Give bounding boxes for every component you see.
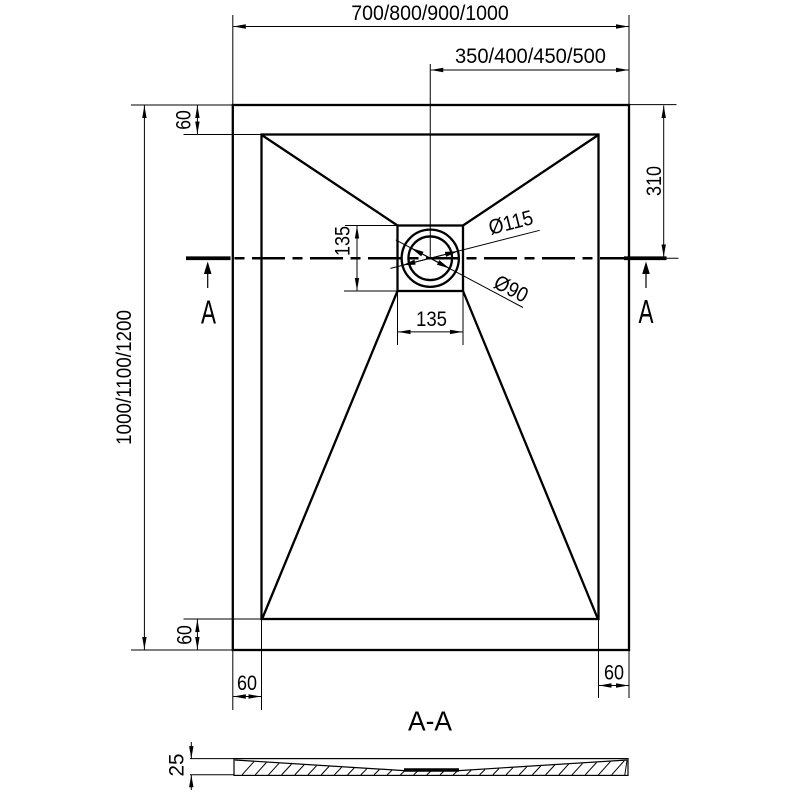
svg-text:310: 310 [643, 166, 666, 196]
svg-text:135: 135 [416, 308, 447, 331]
svg-text:25: 25 [166, 754, 189, 777]
svg-text:350/400/450/500: 350/400/450/500 [455, 45, 606, 68]
svg-text:A: A [201, 294, 216, 331]
svg-text:A-A: A-A [408, 706, 452, 737]
svg-text:A: A [639, 293, 654, 330]
svg-text:1000/1100/1200: 1000/1100/1200 [113, 310, 136, 445]
svg-text:60: 60 [237, 672, 257, 695]
svg-text:60: 60 [173, 110, 196, 130]
svg-text:60: 60 [174, 625, 197, 645]
svg-text:135: 135 [332, 226, 355, 256]
svg-text:60: 60 [604, 662, 624, 685]
svg-text:700/800/900/1000: 700/800/900/1000 [351, 2, 509, 25]
